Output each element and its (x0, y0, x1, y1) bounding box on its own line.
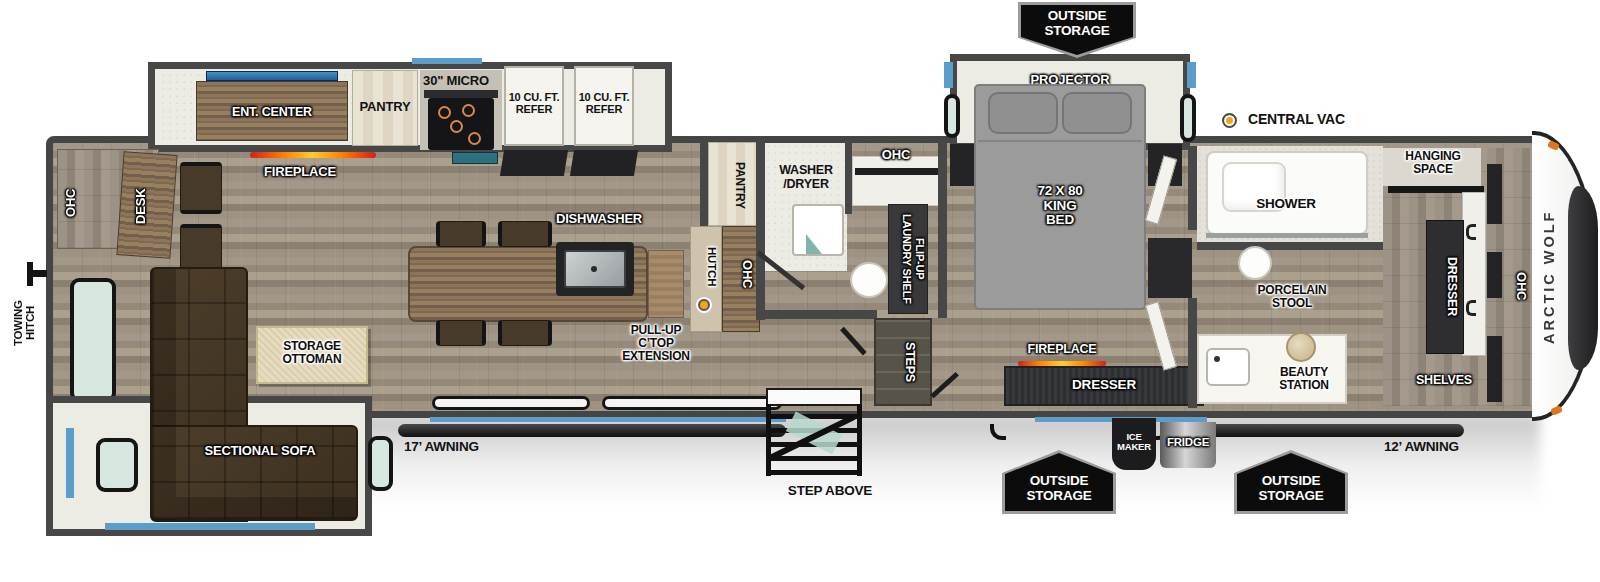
awning-rear-label: 17’ AWNING (404, 440, 514, 455)
cabinet-handle (1466, 224, 1476, 240)
beauty-sink (1206, 348, 1250, 386)
beauty-station-label: BEAUTY STATION (1254, 366, 1354, 392)
ohc-cubby (1487, 252, 1502, 298)
front-dresser-label: DRESSER (1432, 240, 1458, 334)
step-rail-right (857, 404, 862, 476)
fridge-label: FRIDGE (1158, 436, 1218, 448)
floorplan-canvas: ENT. CENTER PANTRY 30" MICRO 10 CU. FT. … (0, 0, 1600, 582)
stove-burner (462, 104, 475, 117)
bedroom-cabinet (1148, 238, 1192, 298)
stove-burner (438, 106, 451, 119)
sectional-sofa-label: SECTIONAL SOFA (192, 444, 328, 458)
pantry-label: PANTRY (350, 100, 420, 114)
bed-slide-accent-left (944, 62, 953, 88)
outside-storage-label: OUTSIDE STORAGE (1002, 474, 1116, 504)
bed-pillow (988, 92, 1058, 134)
beauty-stool (1286, 332, 1316, 362)
toilet-mid (850, 262, 888, 298)
front-ohc-label: OHC (1502, 262, 1528, 310)
entry-steps (764, 404, 864, 480)
sofa-slide-accent-left (66, 428, 74, 498)
dinette-chair (436, 320, 486, 346)
hutch-label: HUTCH (692, 236, 718, 298)
dinette-chair (498, 320, 552, 346)
ohc-cubby (1487, 164, 1502, 224)
awning-roller-rear (398, 424, 786, 437)
sofa-slide-accent-bottom (105, 523, 315, 530)
central-vac-port (698, 299, 710, 311)
cabinet-handle (1466, 300, 1476, 316)
steps-label: STEPS (888, 330, 916, 394)
refer-front-1 (500, 150, 568, 176)
shower-label: SHOWER (1236, 197, 1336, 212)
hutch-ohc-label: OHC (726, 248, 754, 300)
porcelain-stool-label: PORCELAIN STOOL (1242, 284, 1342, 310)
bed-slide-window-right (1180, 94, 1196, 142)
washer-dryer-label: WASHER /DRYER (764, 164, 848, 191)
awning-front-label: 12’ AWNING (1384, 440, 1494, 455)
step-tread (771, 456, 857, 461)
toilet-front (1238, 246, 1272, 280)
rear-window (70, 278, 116, 402)
wall-bedroom-right-bottom (1188, 298, 1197, 408)
king-bed-label: 72 X 80 KING BED (1008, 184, 1112, 228)
awning-roller-front (1188, 424, 1464, 437)
sink-drain (591, 266, 597, 272)
tv-bar (206, 71, 338, 81)
bedroom-fireplace-label: FIREPLACE (1012, 343, 1112, 357)
flip-up-shelf-label: FLIP-UP LAUNDRY SHELF (890, 208, 926, 310)
step-tread (771, 470, 857, 475)
central-vac-icon (1222, 113, 1237, 128)
outside-storage-banner-top: OUTSIDE STORAGE (1018, 2, 1136, 58)
bed-slide-window-left (944, 94, 960, 138)
wall-pantry-left (700, 140, 708, 228)
towing-hitch-label: TOWING HITCH (12, 286, 48, 360)
micro-label: 30" MICRO (406, 74, 506, 88)
sofa-backrest-bottom (176, 497, 356, 519)
ice-maker-label: ICE MAKER (1112, 432, 1156, 453)
wall-bedroom-right-top (1188, 146, 1197, 230)
stove-burner (450, 120, 463, 133)
shelves-label: SHELVES (1400, 374, 1488, 388)
dinette-chair (436, 221, 486, 247)
bed-slide-accent-right (1187, 62, 1196, 88)
washer-door (806, 234, 822, 254)
ent-center-label: ENT. CENTER (206, 106, 338, 120)
refrigerator-2-label: 10 CU. FT. REFER (572, 92, 636, 116)
sofa-slide-window-right (368, 436, 393, 491)
sofa-slide-window-left (96, 438, 138, 492)
front-cap-hood (1568, 186, 1598, 370)
pantry2-label: PANTRY (718, 154, 746, 216)
shower-glass (1206, 233, 1368, 238)
ohc-cubby (1487, 336, 1502, 402)
dishwasher-label: DISHWASHER (544, 212, 654, 226)
refer-front-2 (570, 150, 638, 176)
side-window (602, 396, 782, 410)
body-accent-rear (430, 417, 786, 422)
hanging-space-label: HANGING SPACE (1386, 150, 1480, 176)
towing-hitch-bar (31, 270, 47, 277)
refrigerator-1-label: 10 CU. FT. REFER (502, 92, 566, 116)
desk-label: DESK (134, 178, 160, 234)
bed-pillow (1062, 92, 1132, 134)
beauty-faucet (1214, 356, 1220, 362)
stove-burner (468, 132, 481, 145)
bedroom-dresser-label: DRESSER (1044, 378, 1164, 393)
fireplace-strip (250, 152, 376, 158)
storage-ottoman-label: STORAGE OTTOMAN (258, 340, 366, 366)
fireplace-label: FIREPLACE (242, 165, 358, 179)
wall-bedroom-left (938, 140, 947, 318)
bed-seam (978, 140, 1142, 142)
wall-bath-bottom (765, 310, 877, 319)
desk-chair (180, 162, 222, 214)
outside-storage-label: OUTSIDE STORAGE (1018, 9, 1136, 39)
wall-shower-bottom (1197, 242, 1383, 250)
bath-vanity (852, 156, 942, 206)
stove (428, 98, 494, 150)
kitchen-slide-accent (412, 58, 482, 64)
central-vac-label: CENTRAL VAC (1248, 112, 1368, 127)
brand-logo: ARCTIC WOLF (1542, 192, 1566, 362)
outside-storage-label: OUTSIDE STORAGE (1234, 474, 1348, 504)
countertop-extension (648, 250, 684, 318)
vanity-backsplash (855, 168, 939, 175)
step-above-label: STEP ABOVE (770, 484, 890, 499)
closet-white-cabinet (1462, 192, 1486, 356)
rear-ohc-label: OHC (64, 174, 90, 232)
bath-ohc-label: OHC (868, 148, 924, 162)
range-hood (424, 90, 498, 98)
sofa-backrest-left (152, 269, 176, 520)
side-window (432, 396, 590, 410)
sink-rack (452, 152, 498, 164)
